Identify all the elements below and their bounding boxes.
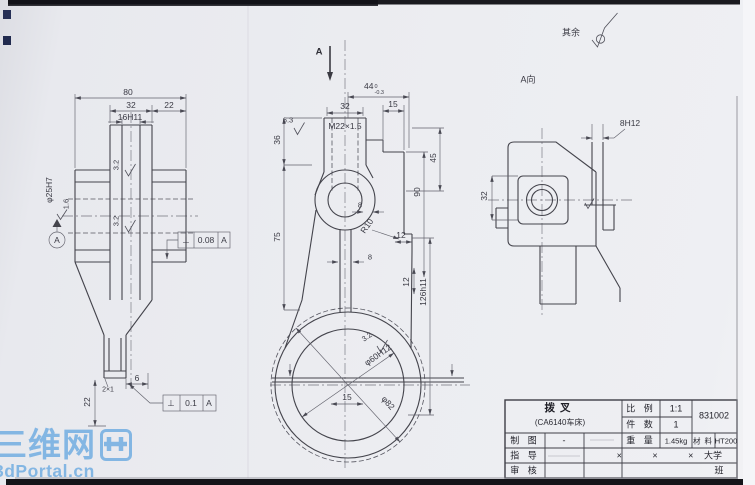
dim-right-mid-height: 90 bbox=[413, 187, 422, 196]
others-finish-label: 其余 bbox=[562, 29, 580, 38]
title-material-label: 材 料 bbox=[693, 437, 713, 445]
dim-thread-spec: M22×1.5 bbox=[328, 122, 361, 131]
dim-right-step-height: 45 bbox=[429, 153, 438, 162]
finish-bore: 1.6 bbox=[62, 199, 70, 209]
datum-a-label: A bbox=[54, 236, 60, 245]
title-check-label: 审 核 bbox=[510, 467, 540, 476]
dim-boss-width: 32 bbox=[126, 101, 135, 110]
title-qty-value: 1 bbox=[673, 421, 678, 430]
dim-left-lower-height: 75 bbox=[273, 232, 282, 241]
view-a-label: A向 bbox=[520, 76, 535, 85]
dim-bore: φ25H7 bbox=[45, 177, 54, 203]
dim-stem-width: 8 bbox=[368, 253, 372, 261]
dim-flange-width: 22 bbox=[164, 101, 173, 110]
scanned-drawing-sheet: 80 32 22 16H11 3.2 3.2 φ25H7 1.6 A ⊥ 0.0… bbox=[0, 0, 755, 485]
title-weight-value: 1.45kg bbox=[665, 437, 688, 445]
title-qty-label: 件 数 bbox=[626, 421, 656, 430]
dim-slot-width: 16H11 bbox=[118, 113, 142, 122]
dim-pad-height: 22 bbox=[83, 397, 92, 406]
dim-aux-boss-height: 32 bbox=[480, 191, 489, 200]
dim-top-width: 440-0.3 bbox=[364, 82, 384, 96]
title-weight-label: 重 量 bbox=[626, 437, 656, 446]
dimension-lines bbox=[49, 92, 625, 442]
dim-face-offset: 6 bbox=[135, 374, 140, 383]
watermark: 三维网 3dPortal.cn bbox=[0, 428, 132, 481]
finish-slot-lower: 3.2 bbox=[112, 216, 120, 226]
watermark-site-url: 3dPortal.cn bbox=[0, 463, 132, 481]
tolerance-frame-2-symbol: ⊥ bbox=[167, 399, 174, 408]
title-part-name: 拨叉 bbox=[545, 403, 576, 414]
dim-notch-width: 12 bbox=[396, 231, 405, 240]
title-scale-label: 比 例 bbox=[626, 405, 656, 414]
section-arrow-label: A bbox=[316, 47, 323, 57]
title-draft-value: - bbox=[563, 437, 566, 446]
finish-thread-face: 6.3 bbox=[283, 116, 293, 124]
watermark-site-name: 三维网 bbox=[0, 428, 96, 461]
title-part-sub: (CA6140车床) bbox=[535, 419, 585, 427]
tolerance-frame-1-datum: A bbox=[221, 236, 227, 245]
tolerance-frame-2-value: 0.1 bbox=[185, 399, 197, 408]
title-drawing-no: 831002 bbox=[699, 412, 729, 421]
dim-jaw-offset: 15 bbox=[342, 393, 351, 402]
surface-finish-marks bbox=[57, 13, 618, 352]
dim-boss-step: 8 bbox=[358, 201, 362, 209]
title-scale-value: 1:1 bbox=[670, 405, 683, 414]
dim-thread-boss-width: 32 bbox=[340, 102, 349, 111]
part-outlines bbox=[75, 118, 620, 458]
dim-overall-height: 126h11 bbox=[419, 278, 428, 306]
finish-slot-upper: 3.2 bbox=[112, 160, 120, 170]
section-cut-marks bbox=[53, 46, 334, 227]
title-draft-label: 制 图 bbox=[510, 437, 540, 446]
title-advisor-label: 指 导 bbox=[510, 452, 540, 461]
watermark-logo-icon bbox=[100, 429, 132, 461]
dim-left-upper-height: 36 bbox=[273, 135, 282, 144]
title-class-label: 班 bbox=[714, 467, 723, 476]
dim-notch-height: 12 bbox=[402, 277, 411, 286]
dim-aux-slot-width: 8H12 bbox=[620, 119, 640, 128]
dim-overall-width: 80 bbox=[123, 88, 132, 97]
dim-step-width: 15 bbox=[388, 100, 397, 109]
tolerance-frame-2-datum: A bbox=[206, 399, 212, 408]
title-school-marks: × × × bbox=[617, 452, 708, 461]
title-material-value: HT200 bbox=[715, 437, 738, 445]
title-school: 大学 bbox=[704, 452, 722, 461]
tolerance-frame-1-value: 0.08 bbox=[198, 236, 215, 245]
dim-groove: 2×1 bbox=[102, 387, 114, 394]
tolerance-frame-1-symbol: ⊥ bbox=[182, 236, 189, 245]
